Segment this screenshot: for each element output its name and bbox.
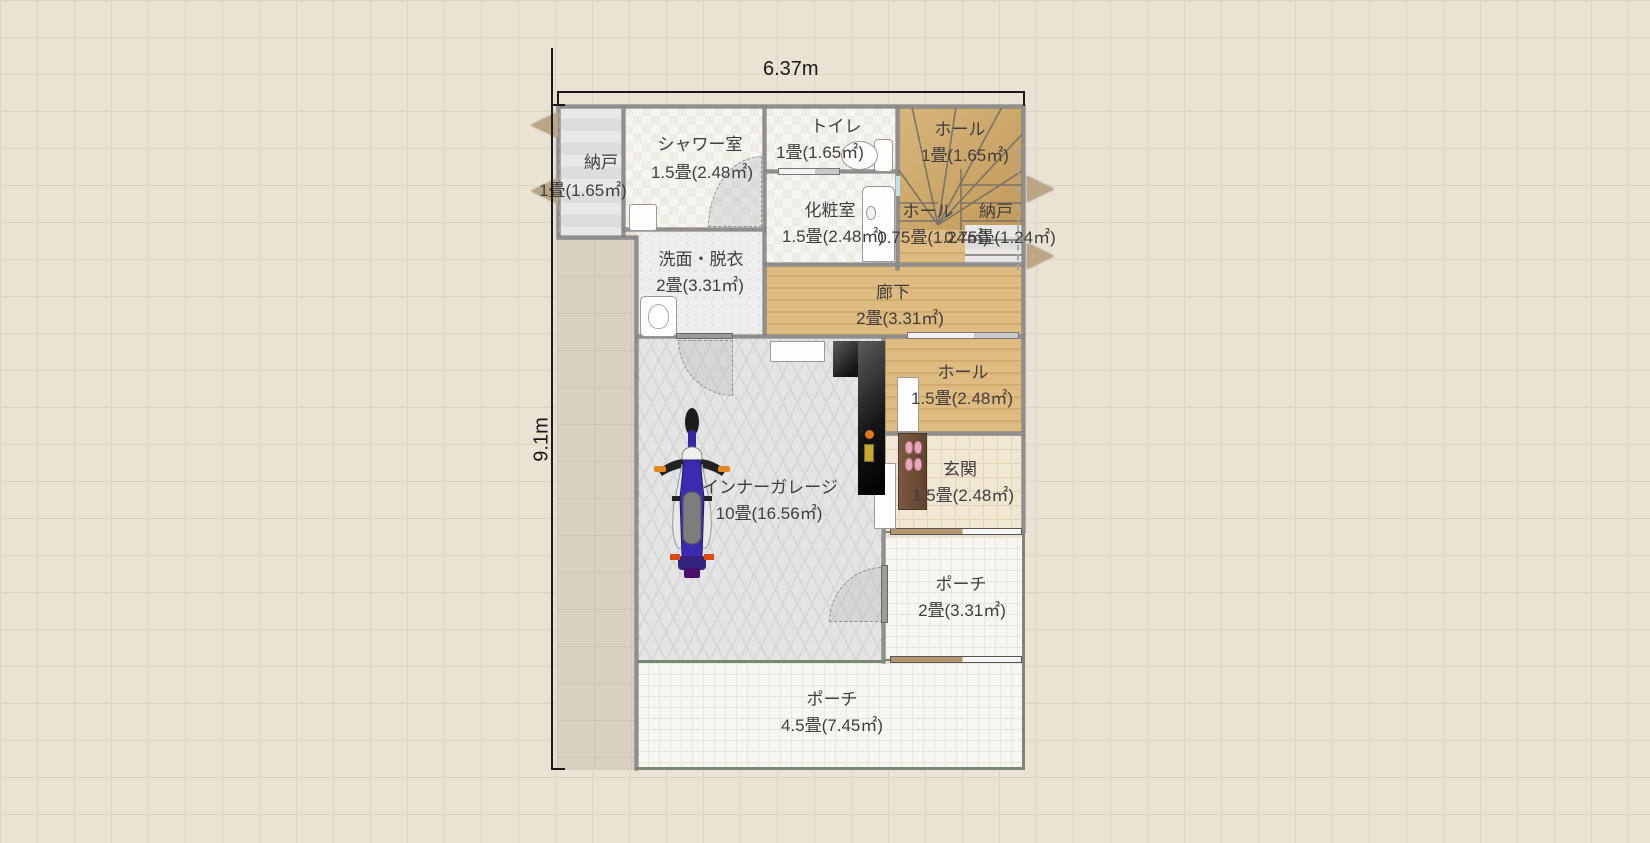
- dimension-height-line: [551, 48, 553, 770]
- label-nando-left-name: 納戸: [584, 153, 618, 173]
- wall-outer-left: [635, 236, 638, 770]
- label-porch2-area: 2畳(3.31㎡): [918, 601, 1006, 621]
- sliding-door-toilet[interactable]: [778, 168, 840, 175]
- label-keshou-area: 1.5畳(2.48㎡): [782, 227, 884, 247]
- label-hall15-name: ホール: [938, 363, 989, 383]
- label-nando-right-name: 納戸: [979, 202, 1013, 222]
- sliding-door-hall15[interactable]: [907, 332, 1019, 339]
- cabinet-knob-orange: [865, 430, 874, 439]
- label-shower-name: シャワー室: [658, 135, 743, 155]
- wall-outer-right-lower: [1022, 533, 1025, 770]
- dimension-width-label: 6.37m: [763, 58, 819, 81]
- slippers-icon-2b: [914, 458, 922, 471]
- label-porch45-area: 4.5畳(7.45㎡): [781, 716, 883, 736]
- opening-nando-right: [1017, 148, 1019, 270]
- folding-door-arrow-right-1[interactable]: [1027, 176, 1054, 202]
- wall-garage-bottom: [637, 660, 885, 663]
- wall-outer-right: [1022, 105, 1025, 533]
- label-rouka-area: 2畳(3.31㎡): [856, 309, 944, 329]
- label-senmen-area: 2畳(3.31㎡): [656, 276, 744, 296]
- slippers-icon-1b: [914, 441, 922, 454]
- wall-shower-toilet: [763, 105, 766, 338]
- label-toilet-area: 1畳(1.65㎡): [776, 143, 864, 163]
- room-porch-2[interactable]: [885, 537, 1025, 660]
- wall-nando-shower: [622, 105, 625, 236]
- washbasin-icon-keshou[interactable]: [862, 186, 895, 262]
- opening-nando-left: [559, 112, 561, 232]
- senmen-basin-bowl: [648, 304, 669, 329]
- label-hall-mini-name: ホール: [903, 202, 954, 222]
- label-garage-area: 10畳(16.56㎡): [716, 504, 823, 524]
- label-porch2-name: ポーチ: [936, 575, 987, 595]
- wall-outer-bottom: [635, 767, 1025, 770]
- label-genkan-area: 1.5畳(2.48㎡): [912, 486, 1014, 506]
- threshold-genkan-porch[interactable]: [890, 528, 1022, 535]
- label-shower-area: 1.5畳(2.48㎡): [651, 163, 753, 183]
- label-garage-name: インナーガレージ: [702, 478, 838, 498]
- label-nando-right-area: 0.75畳(1.24㎡): [944, 228, 1056, 248]
- dimension-width-tick-right: [1023, 91, 1025, 106]
- dimension-width-line: [557, 91, 1025, 93]
- label-genkan-name: 玄関: [943, 460, 977, 480]
- exterior-strip: [557, 239, 637, 770]
- label-porch45-name: ポーチ: [807, 690, 858, 710]
- slippers-icon-2a: [905, 458, 913, 471]
- wall-keshou-rouka: [765, 263, 1025, 266]
- threshold-porch2-porch45[interactable]: [890, 656, 1022, 663]
- window-garage[interactable]: [770, 341, 825, 362]
- label-senmen-name: 洗面・脱衣: [659, 250, 744, 270]
- wall-nando-bottom: [557, 236, 637, 239]
- shower-base[interactable]: [629, 204, 657, 231]
- cabinet-latch-yellow: [864, 444, 874, 462]
- label-hall-stairs-area: 1畳(1.65㎡): [921, 146, 1009, 166]
- door-leaf-senmen-garage[interactable]: [676, 333, 733, 339]
- label-hall-stairs-name: ホール: [935, 120, 986, 140]
- floorplan-canvas: 納戸 1畳(1.65㎡) シャワー室 1.5畳(2.48㎡) トイレ 1畳(1.…: [0, 0, 1650, 843]
- dimension-height-tick-bottom: [551, 768, 565, 770]
- dimension-height-tick-top: [551, 104, 565, 106]
- label-toilet-name: トイレ: [811, 117, 862, 137]
- folding-door-arrow-left-1[interactable]: [531, 112, 558, 138]
- label-hall15-area: 1.5畳(2.48㎡): [911, 389, 1013, 409]
- label-keshou-name: 化粧室: [805, 201, 856, 221]
- keshou-faucet: [866, 206, 876, 220]
- door-leaf-garage-porch[interactable]: [881, 565, 888, 623]
- label-rouka-name: 廊下: [876, 283, 910, 303]
- window-tick: [896, 176, 900, 196]
- slippers-icon-1a: [905, 441, 913, 454]
- wall-outer-top: [557, 105, 1025, 108]
- black-cabinet-side[interactable]: [858, 341, 885, 495]
